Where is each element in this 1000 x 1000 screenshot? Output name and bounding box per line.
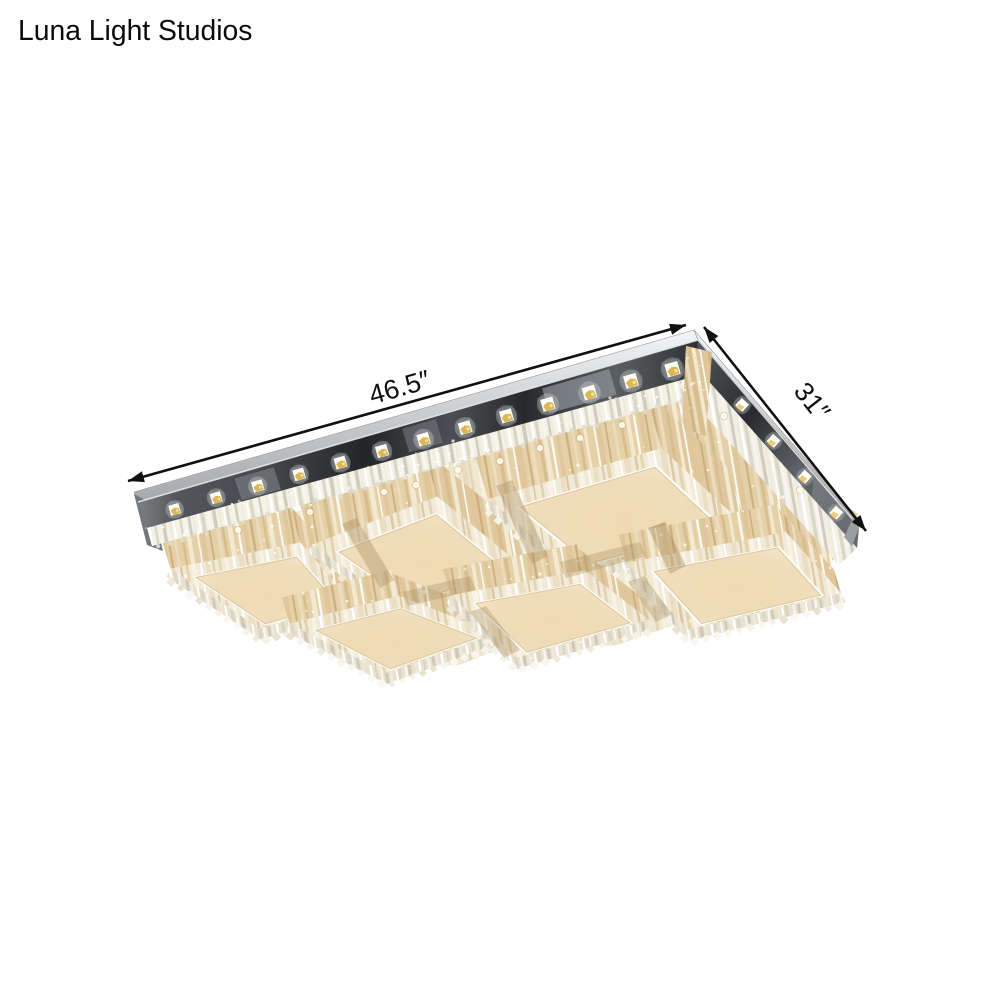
svg-text:Luna Light Studios: Luna Light Studios [18,14,252,46]
